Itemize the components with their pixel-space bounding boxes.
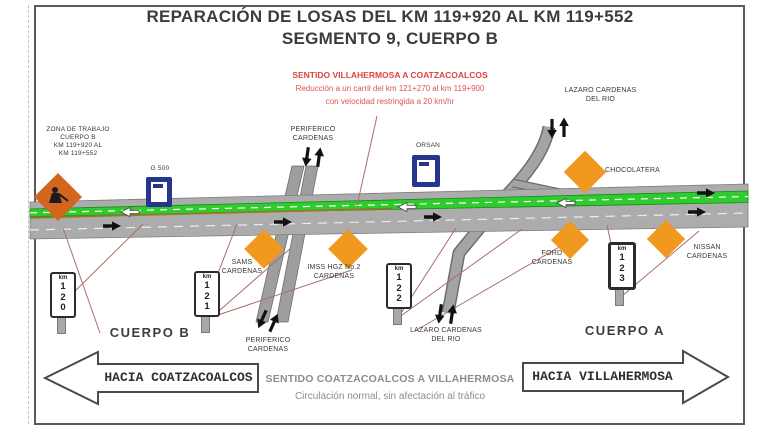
imss-diamond-icon: [328, 229, 368, 269]
chocolatera-diamond-icon: [564, 151, 606, 193]
km-post-121: km121: [194, 271, 220, 317]
g500-label: G 500: [138, 165, 182, 173]
periferico-top-line1: PERIFERICO: [272, 126, 354, 135]
page-title-line1: REPARACIÓN DE LOSAS DEL KM 119+920 AL KM…: [36, 7, 744, 27]
periferico-bottom-label: PERIFERICO CARDENAS: [226, 337, 310, 355]
work-zone-note: ZONA DE TRABAJO CUERPO B KM 119+920 AL K…: [28, 126, 128, 159]
km-post-123-stem: [615, 288, 624, 306]
nissan-label: NISSAN CARDENAS: [679, 244, 735, 262]
periferico-top-label: PERIFERICO CARDENAS: [272, 126, 354, 144]
lazaro-top-label: LAZARO CARDENAS DEL RIO: [548, 87, 653, 105]
work-zone-line4: KM 119+552: [28, 150, 128, 158]
lazaro-bottom-label: LAZARO CARDENAS DEL RIO: [394, 327, 498, 345]
periferico-bottom-line2: CARDENAS: [226, 346, 310, 355]
road-work-diagram: REPARACIÓN DE LOSAS DEL KM 119+920 AL KM…: [0, 0, 768, 432]
nissan-line1: NISSAN: [679, 244, 735, 253]
footer-direction-note: SENTIDO COATZACOALCOS A VILLAHERMOSA: [36, 373, 744, 385]
warning-line1: SENTIDO VILLAHERMOSA A COATZACOALCOS: [36, 69, 744, 82]
periferico-top-line2: CARDENAS: [272, 135, 354, 144]
km-post-121-stem: [201, 315, 210, 333]
ford-label: FORD CARDENAS: [523, 250, 581, 268]
worker-glyph-head: [52, 187, 58, 193]
diagram-canvas: [0, 0, 768, 432]
lazaro-top-line1: LAZARO CARDENAS: [548, 87, 653, 96]
km-post-120-stem: [57, 316, 66, 334]
lazaro-bottom-line1: LAZARO CARDENAS: [394, 327, 498, 336]
work-zone-line2: CUERPO B: [28, 134, 128, 142]
sams-label: SAMS CARDENAS: [212, 259, 272, 277]
km-post-120: km120: [50, 272, 76, 318]
lazaro-bottom-line2: DEL RIO: [394, 336, 498, 345]
km-post-122: km122: [386, 263, 412, 309]
footer-traffic-note: Circulación normal, sin afectación al tr…: [36, 391, 744, 402]
periferico-bottom-line1: PERIFERICO: [226, 337, 310, 346]
orsan-label: ORSAN: [406, 142, 450, 150]
cuerpo-a-label: CUERPO A: [573, 323, 677, 338]
km-post-123: km123: [608, 242, 636, 290]
km-post-122-stem: [393, 307, 402, 325]
sams-line2: CARDENAS: [212, 268, 272, 277]
nissan-line2: CARDENAS: [679, 253, 735, 262]
imss-label: IMSS HGZ No.2 CARDENAS: [289, 264, 379, 282]
work-zone-line3: KM 119+920 AL: [28, 142, 128, 150]
gas-station-icon-g500: [146, 177, 172, 207]
ford-line2: CARDENAS: [523, 259, 581, 268]
sams-line1: SAMS: [212, 259, 272, 268]
cuerpo-b-label: CUERPO B: [98, 325, 202, 340]
imss-line2: CARDENAS: [289, 273, 379, 282]
gas-station-icon-orsan: [412, 155, 440, 187]
periferico-top-two-way-arrow: [301, 145, 325, 169]
ford-line1: FORD: [523, 250, 581, 259]
imss-line1: IMSS HGZ No.2: [289, 264, 379, 273]
work-zone-line1: ZONA DE TRABAJO: [28, 126, 128, 134]
lazaro-top-two-way-arrow: [547, 118, 569, 139]
lazaro-top-line2: DEL RIO: [548, 96, 653, 105]
chocolatera-label: CHOCOLATERA: [605, 167, 697, 176]
page-title-line2: SEGMENTO 9, CUERPO B: [36, 29, 744, 49]
